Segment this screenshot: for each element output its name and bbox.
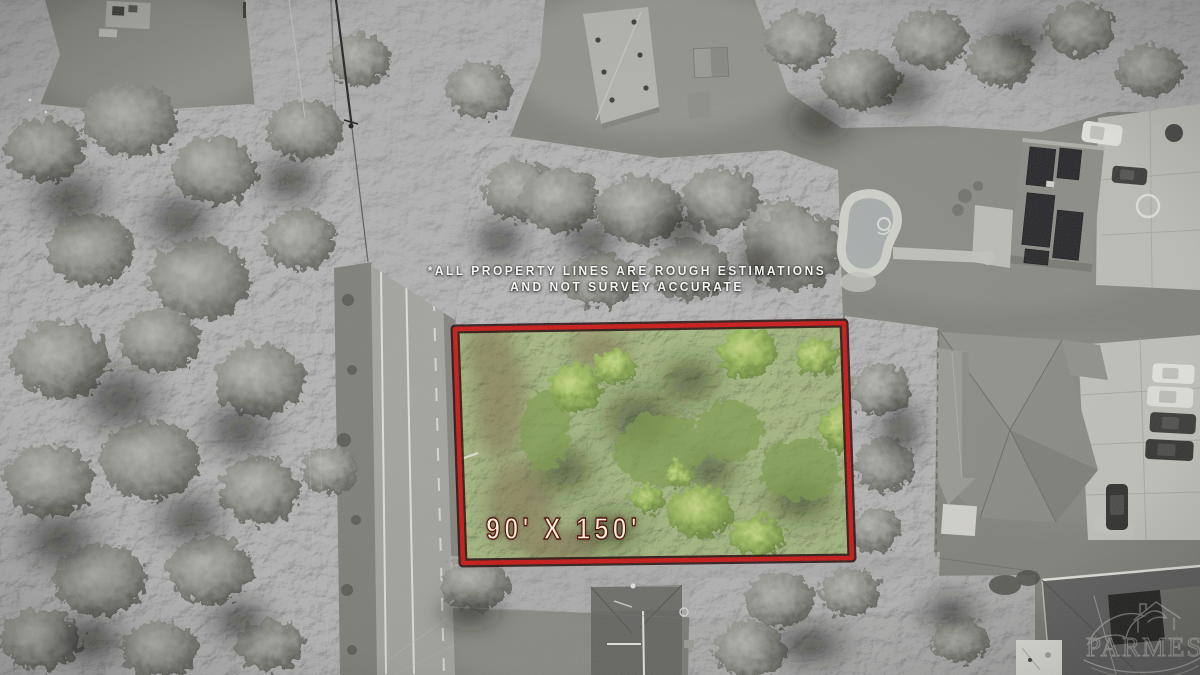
disclaimer-line-2: AND NOT SURVEY ACCURATE (428, 279, 827, 295)
aerial-photo: PAR MES (0, 0, 1200, 675)
lot-dimensions-label: 90' X 150' (486, 512, 641, 546)
aerial-photo-canvas: PAR MES *ALL PROPERTY LINES ARE ROUGH ES… (0, 0, 1200, 675)
vignette (0, 0, 1200, 675)
disclaimer-line-1: *ALL PROPERTY LINES ARE ROUGH ESTIMATION… (428, 263, 827, 279)
disclaimer-text: *ALL PROPERTY LINES ARE ROUGH ESTIMATION… (428, 263, 827, 295)
